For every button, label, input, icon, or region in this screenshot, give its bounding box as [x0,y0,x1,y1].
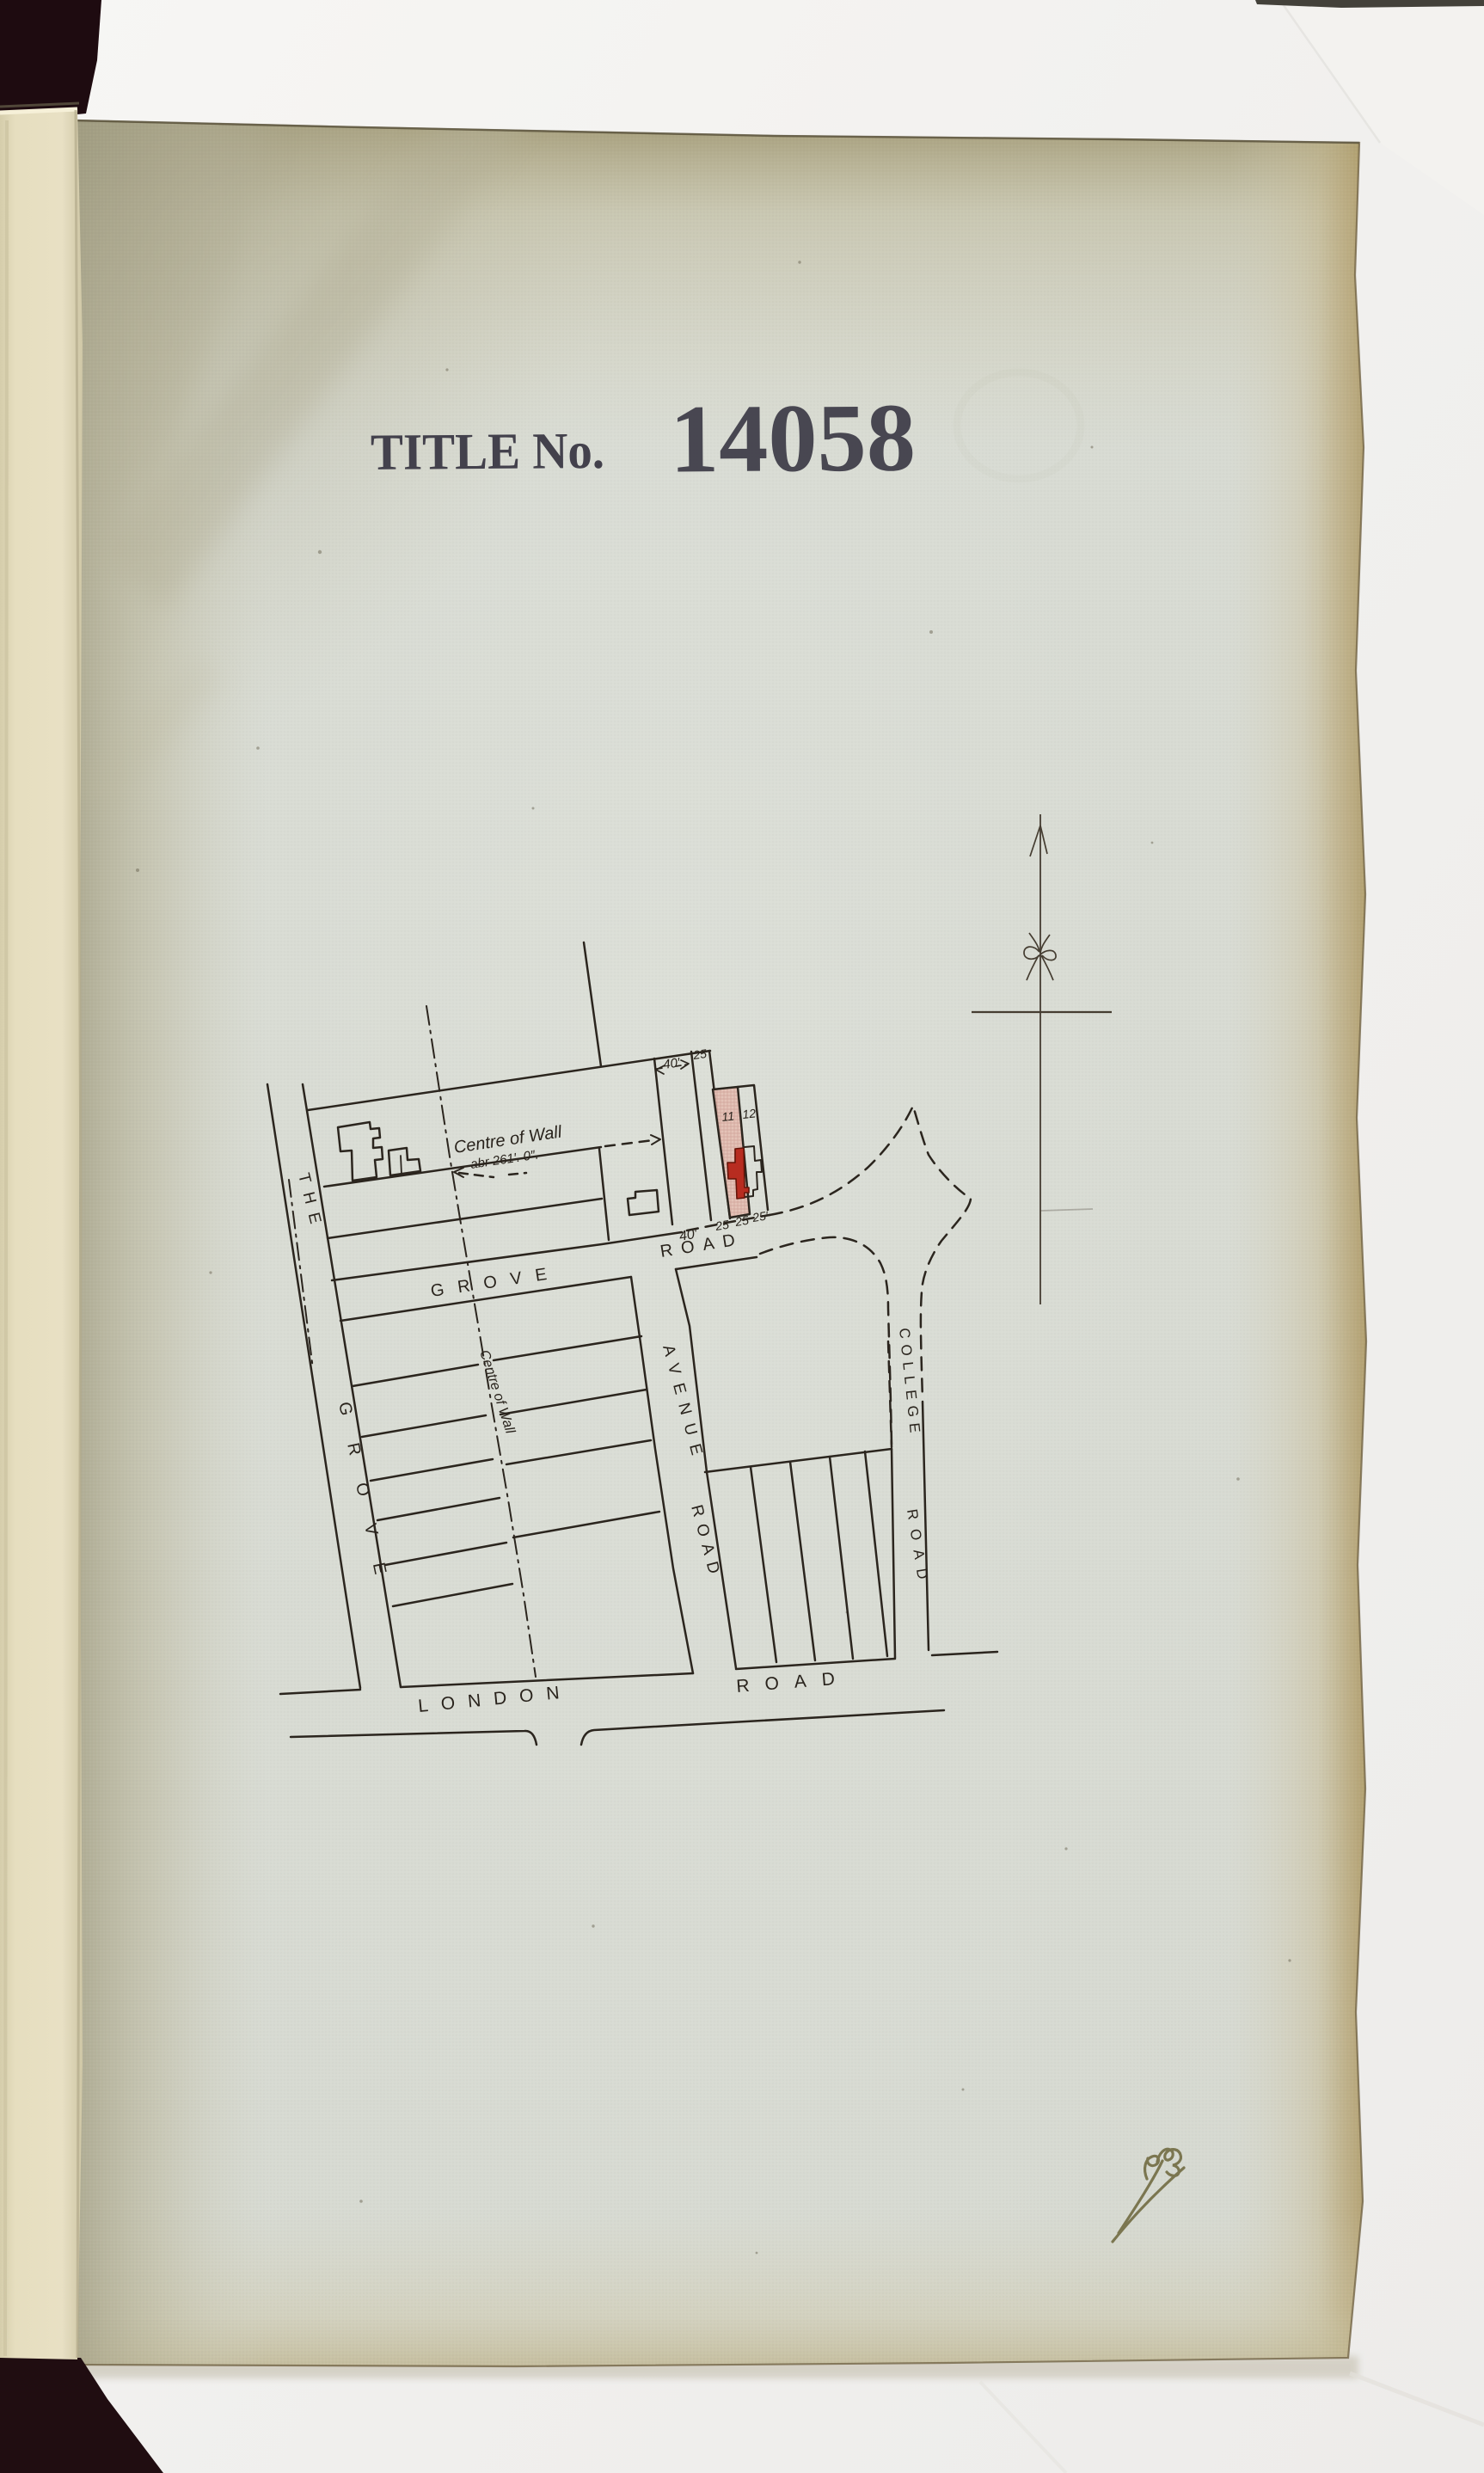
svg-text:25: 25 [733,1213,750,1229]
svg-text:TITLE No.: TITLE No. [371,422,604,481]
svg-text:25: 25 [691,1046,708,1062]
svg-text:12: 12 [742,1106,757,1121]
svg-text:25: 25 [714,1218,730,1233]
svg-text:40′: 40′ [662,1055,682,1072]
svg-text:14058: 14058 [670,384,917,493]
svg-text:11: 11 [721,1109,735,1124]
